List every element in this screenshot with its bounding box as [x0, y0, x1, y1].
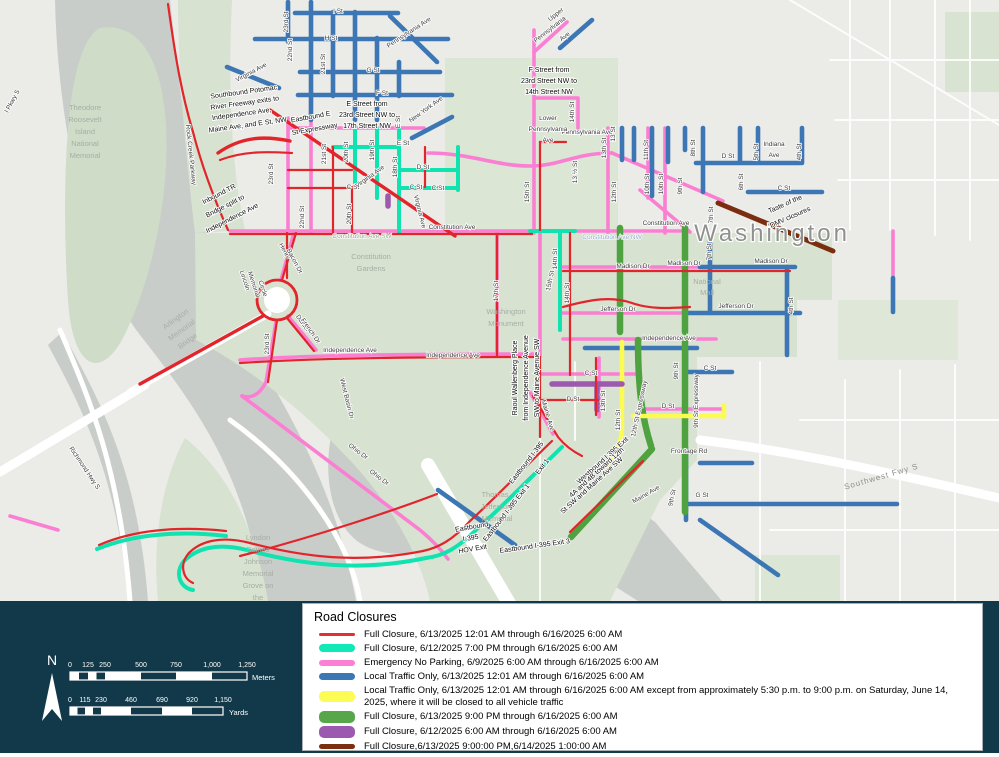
map-label: E St [397, 140, 409, 147]
map-label: 23rd St [264, 333, 271, 354]
map-label: Madison Dr [754, 258, 788, 265]
map-label: 12th St [615, 410, 622, 431]
map-label: Roosevelt [68, 115, 102, 124]
legend-item: Full Closure, 6/13/2025 9:00 PM through … [303, 709, 982, 724]
legend-item-label: Full Closure, 6/13/2025 12:01 AM through… [364, 629, 622, 640]
map-label: 23rd St [268, 163, 275, 184]
map-label: Frontage Rd [671, 448, 708, 455]
scale-tick: 1,150 [214, 697, 232, 704]
map-label: Indiana [763, 141, 785, 148]
map-label: Lower [539, 115, 558, 122]
scale-tick: 500 [135, 662, 147, 669]
map-annotation: 23rd Street NW to [339, 112, 395, 119]
map-label: Theodore [69, 103, 101, 112]
map-label: Jefferson Dr [718, 303, 754, 310]
map-label: 21st St [320, 54, 327, 74]
map-label: 13 ½ St [571, 161, 579, 184]
map-label: Constitution Ave [643, 220, 690, 227]
scale-tick: 1,000 [203, 662, 221, 669]
legend-item: Full Closure,6/13/2025 9:00:00 PM,6/14/2… [303, 739, 982, 751]
map-label: Johnson [244, 557, 272, 566]
map-label: 17th St [493, 281, 500, 302]
map-label: 23rd St [283, 11, 290, 32]
scale-tick: 115 [79, 697, 90, 704]
map-label: Mall [700, 288, 714, 297]
map-label: 22nd St [299, 206, 306, 229]
legend-item-label: Full Closure,6/13/2025 9:00:00 PM,6/14/2… [364, 741, 606, 751]
map-label: 10th St [644, 174, 651, 195]
map-annotation: from Independence Avenue [523, 335, 530, 421]
map-label: Island [75, 127, 95, 136]
map-annotation: 17th Street NW [343, 123, 391, 130]
legend-item: Full Closure, 6/12/2025 7:00 PM through … [303, 641, 982, 655]
legend: Road Closures Full Closure, 6/13/2025 12… [302, 603, 983, 751]
map-label: 12th St [611, 182, 618, 203]
map-label: Jefferson [481, 502, 512, 511]
north-label: N [47, 652, 57, 668]
map-label: Baines [247, 545, 270, 554]
map-label: 9th St [677, 177, 684, 194]
map-label: 4th St [796, 143, 803, 160]
map-label: 13 St [610, 126, 617, 141]
map-annotation: E Street from [346, 101, 387, 108]
legend-item-label: Emergency No Parking, 6/9/2025 6:00 AM t… [364, 657, 659, 668]
map-label: 18th St [392, 157, 399, 178]
map-label: 13th St [601, 138, 608, 159]
legend-item-label: Full Closure, 6/12/2025 6:00 AM through … [364, 726, 617, 737]
scale-tick: 0 [68, 697, 72, 704]
scale-tick: 460 [125, 697, 137, 704]
map-canvas[interactable]: I St H St G St F St Pennsylvania Ave 23r… [0, 0, 999, 601]
map-label: 8th St [690, 139, 697, 156]
legend-item: Full Closure, 6/13/2025 12:01 AM through… [303, 627, 982, 641]
scale-tick: 125 [82, 662, 94, 669]
legend-swatch-yellow [319, 691, 355, 702]
map-label: 19th St [369, 140, 376, 161]
scale-tick: 0 [68, 662, 72, 669]
map-label: 9th St [673, 362, 680, 379]
legend-swatch-cyan [319, 644, 355, 652]
legend-swatch-blue [319, 673, 355, 680]
map-label: Memorial [70, 151, 101, 160]
map-label: D St [417, 164, 430, 171]
scale-tick: 1,250 [238, 662, 256, 669]
map-annotation: 14th Street NW [525, 89, 573, 96]
map-label: G St [366, 67, 379, 74]
scalebar-meters: 0 125 250 500 750 1,000 1,250 Meters [68, 662, 275, 682]
map-label: E St [395, 116, 402, 128]
map-label: Constitution Ave [429, 224, 476, 231]
legend-item: Local Traffic Only, 6/13/2025 12:01 AM t… [303, 670, 982, 684]
map-label: G St [695, 492, 708, 499]
map-label: Lyndon [246, 533, 270, 542]
map-label: Pennsylvania Ave [561, 129, 613, 136]
map-label: Independence Ave [323, 347, 377, 354]
map-annotation: Raoul Wallenberg Place [512, 340, 519, 415]
legend-item: Full Closure, 6/12/2025 6:00 AM through … [303, 724, 982, 739]
scale-tick: 250 [99, 662, 111, 669]
map-label: 7th St [706, 243, 713, 260]
map-label: Monument [488, 319, 524, 328]
legend-swatch-green [319, 711, 355, 723]
map-label: 13th St [600, 391, 607, 412]
legend-swatch-brown [319, 744, 355, 749]
map-label: 14th St [569, 102, 576, 123]
scale-unit: Yards [229, 708, 248, 717]
map-label: Pennsylvania [529, 126, 568, 133]
map-label: 22nd St [287, 39, 294, 62]
map-label: C St [432, 185, 445, 192]
map-label: Ave [768, 152, 779, 159]
scale-unit: Meters [252, 673, 275, 682]
map-label: Gardens [357, 264, 386, 273]
map-label: 21st St [321, 144, 328, 164]
map-label: 7th St [708, 206, 715, 223]
map-label: 20th St [346, 204, 353, 225]
map-label: Washington [486, 307, 525, 316]
map-label: C St [704, 365, 717, 372]
map-label: 15th St [524, 182, 531, 203]
map-label: C St [410, 184, 423, 191]
map-label: D St [722, 153, 735, 160]
map-label: Memorial [243, 569, 274, 578]
map-label: I St [333, 8, 343, 15]
map-label: Constitution [351, 252, 391, 261]
map-label: D St [662, 403, 675, 410]
map-label: Independence Ave [426, 352, 480, 359]
map-label: Madison Dr [616, 263, 650, 270]
map-label: Grove on [243, 581, 274, 590]
map-label: H St [325, 35, 338, 42]
scale-tick: 690 [156, 697, 168, 704]
legend-item-label: Full Closure, 6/12/2025 7:00 PM through … [364, 643, 618, 654]
legend-item: Emergency No Parking, 6/9/2025 6:00 AM t… [303, 655, 982, 669]
map-label: Jefferson Dr [600, 306, 636, 313]
map-label: C St [585, 370, 598, 377]
map-label: Independence Ave [642, 335, 696, 342]
map-label: 5th St [753, 143, 760, 160]
legend-swatch-purple [319, 726, 355, 738]
map-label: the [253, 593, 263, 601]
map-label: Thomas [481, 490, 508, 499]
legend-item-label: Full Closure, 6/13/2025 9:00 PM through … [364, 711, 618, 722]
map-label: C St [778, 185, 791, 192]
map-label: 20th St [343, 142, 350, 163]
map-label: 4th St [788, 297, 795, 314]
map-label: Memorial [482, 514, 513, 523]
map-label: National [71, 139, 99, 148]
scale-tick: 750 [170, 662, 182, 669]
map-label: Madison Dr [667, 260, 701, 267]
map-label: 14th St [564, 283, 571, 304]
map-annotation: SW to Maine Avenue SW [534, 338, 541, 417]
map-label: F St [376, 90, 388, 97]
scale-and-north: N 0 125 250 500 750 1,000 1,250 Meters 0… [0, 601, 300, 753]
legend-swatch-red [319, 633, 355, 636]
map-annotation: 23rd Street NW to [521, 78, 577, 85]
legend-item-label: Local Traffic Only, 6/13/2025 12:01 AM t… [364, 671, 644, 682]
scalebar-yards: 0 115 230 460 690 920 1,150 Yards [68, 697, 248, 717]
road-closures-map-page: I St H St G St F St Pennsylvania Ave 23r… [0, 0, 999, 757]
map-annotation: F Street from [529, 67, 570, 74]
map-footer-panel: N 0 125 250 500 750 1,000 1,250 Meters 0… [0, 601, 999, 753]
map-label: 10th St [658, 174, 665, 195]
map-label: Constitution Ave NW [582, 234, 642, 241]
scale-tick: 230 [95, 697, 107, 704]
map-label: National [693, 277, 721, 286]
map-label: 11th St [643, 140, 650, 160]
scale-tick: 920 [186, 697, 198, 704]
map-label: 9th St Expressway [693, 373, 700, 428]
map-label: 6th St [738, 173, 745, 190]
map-label: D St [567, 396, 580, 403]
map-label: Constitution Ave SW [332, 233, 392, 240]
north-arrow-icon [42, 673, 62, 721]
legend-swatch-pink [319, 660, 355, 666]
map-label: 14th St [552, 249, 559, 270]
legend-title: Road Closures [303, 604, 982, 627]
legend-item: Local Traffic Only, 6/13/2025 12:01 AM t… [303, 684, 982, 709]
legend-item-label: Local Traffic Only, 6/13/2025 12:01 AM t… [364, 685, 972, 707]
map-label: Ave [542, 137, 553, 144]
